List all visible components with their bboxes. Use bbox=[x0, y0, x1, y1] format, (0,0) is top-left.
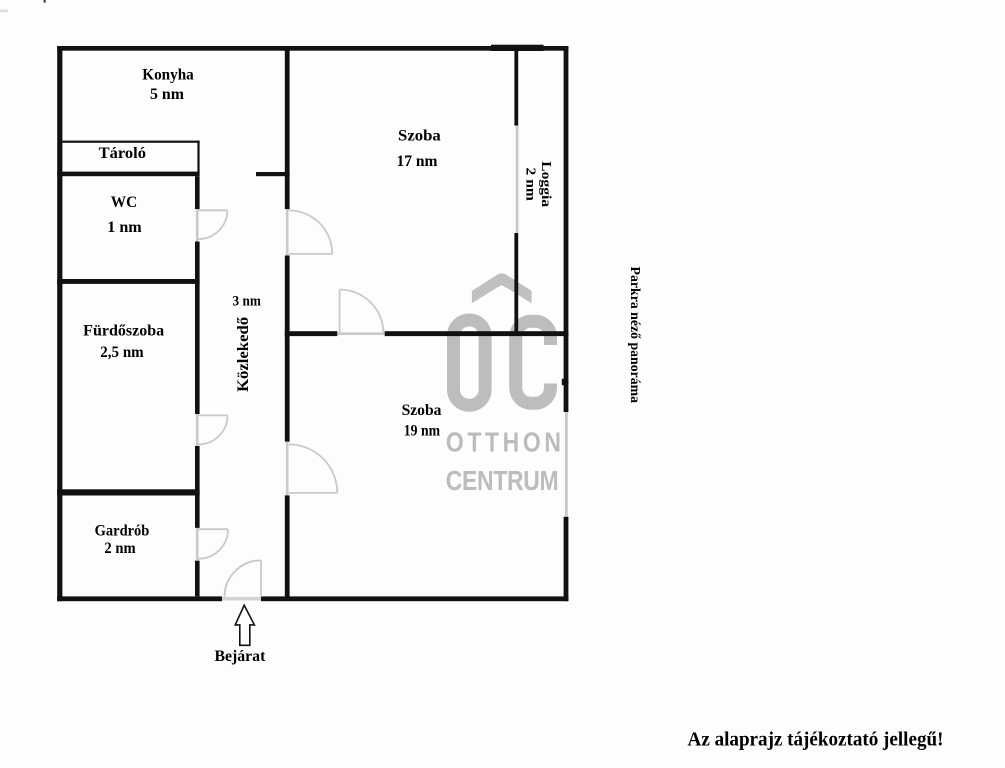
svg-text:Szoba: Szoba bbox=[398, 127, 441, 144]
svg-text:Az alaprajz tájékoztató jelleg: Az alaprajz tájékoztató jellegű! bbox=[688, 728, 944, 750]
svg-text:2 nm: 2 nm bbox=[523, 168, 538, 202]
svg-text:Gardrób: Gardrób bbox=[95, 522, 150, 539]
svg-text:3 nm: 3 nm bbox=[233, 293, 262, 309]
svg-text:Loggia: Loggia bbox=[538, 161, 553, 207]
svg-text:Konyha: Konyha bbox=[142, 66, 194, 83]
svg-text:CENTRUM: CENTRUM bbox=[446, 466, 559, 497]
svg-text:2 nm: 2 nm bbox=[104, 540, 136, 557]
svg-text:17 nm: 17 nm bbox=[397, 153, 439, 170]
svg-text:Szoba: Szoba bbox=[402, 402, 442, 419]
svg-text:WC: WC bbox=[111, 194, 137, 211]
svg-text:19 nm: 19 nm bbox=[404, 423, 441, 440]
svg-text:1 nm: 1 nm bbox=[107, 219, 142, 236]
svg-text:Fürdőszoba: Fürdőszoba bbox=[83, 322, 164, 339]
svg-text:Közlekedő: Közlekedő bbox=[235, 317, 252, 392]
svg-text:OTTHON: OTTHON bbox=[446, 427, 561, 458]
svg-text:2,5 nm: 2,5 nm bbox=[100, 344, 144, 361]
svg-text:Tároló: Tároló bbox=[99, 145, 146, 162]
svg-text:Parkra néző panoráma: Parkra néző panoráma bbox=[627, 267, 642, 404]
svg-text:Bejárat: Bejárat bbox=[214, 648, 266, 665]
svg-text:5 nm: 5 nm bbox=[150, 86, 185, 103]
